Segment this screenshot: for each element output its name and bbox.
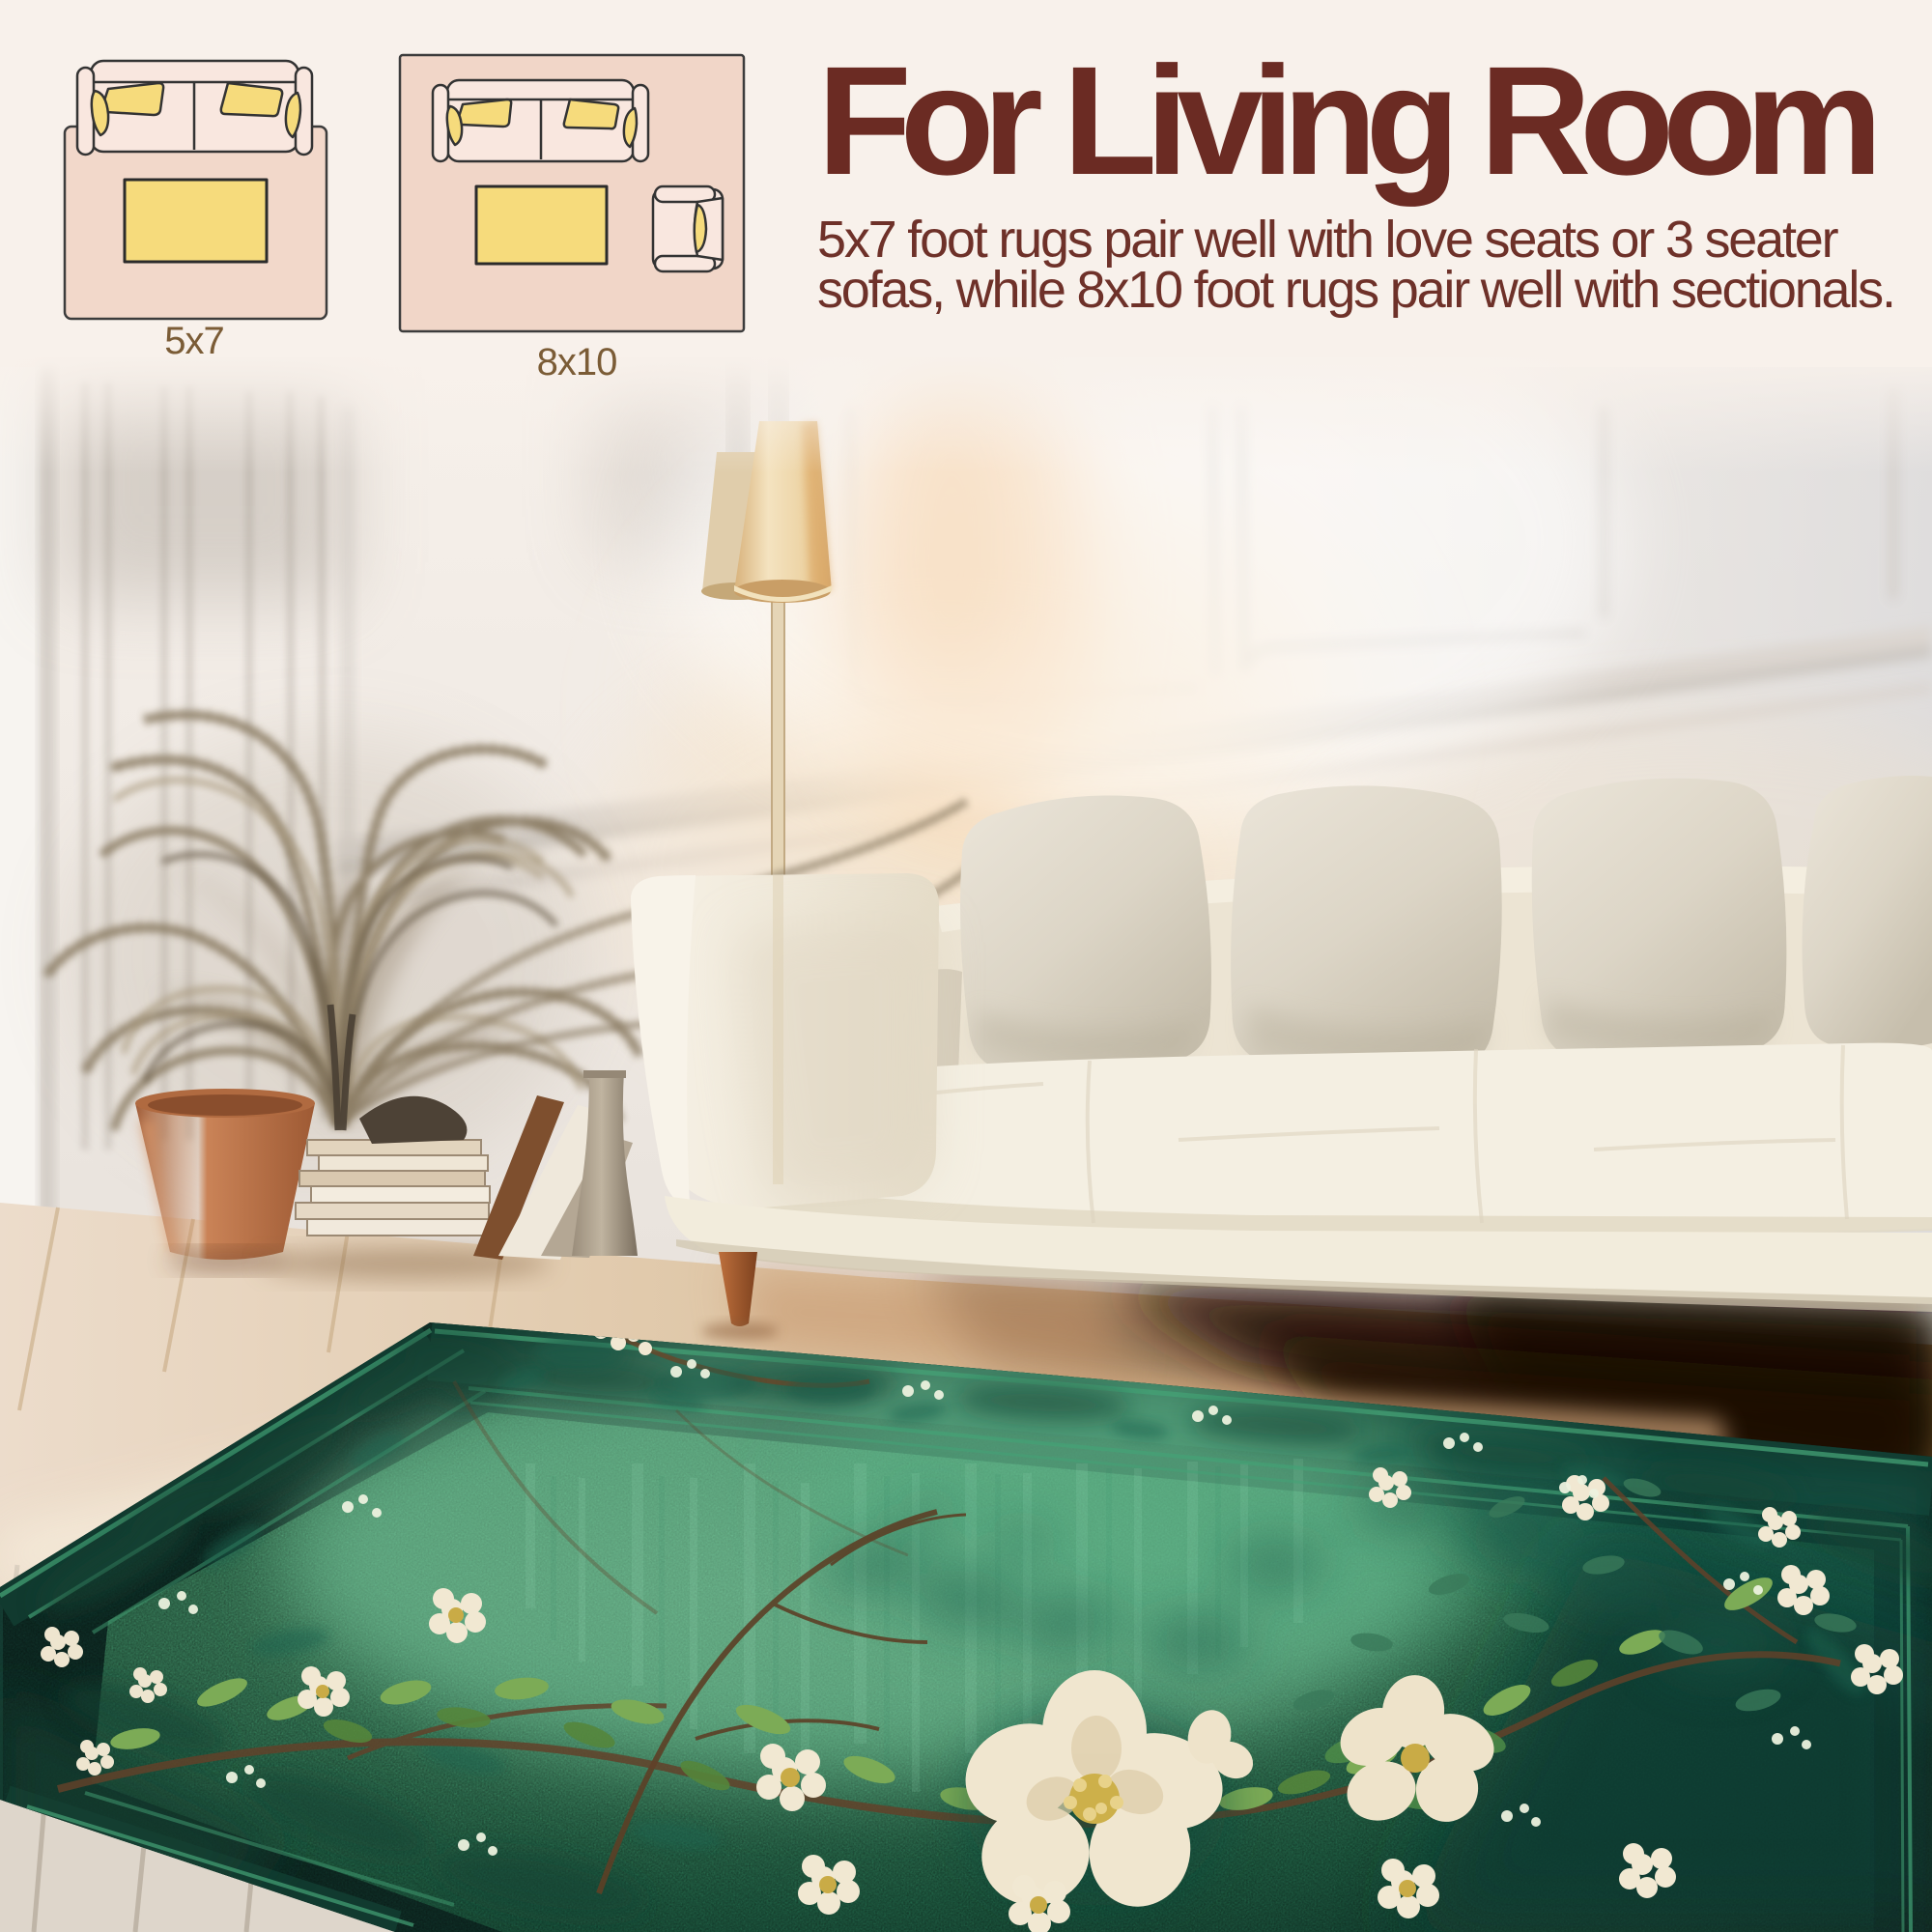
- svg-text:5x7 foot rugs pair well with l: 5x7 foot rugs pair well with love seats …: [817, 211, 1839, 269]
- svg-text:For Living Room: For Living Room: [817, 34, 1874, 207]
- svg-text:5x7: 5x7: [164, 320, 224, 362]
- svg-text:sofas, while 8x10 foot rugs pa: sofas, while 8x10 foot rugs pair well wi…: [817, 261, 1894, 319]
- svg-text:8x10: 8x10: [537, 341, 617, 384]
